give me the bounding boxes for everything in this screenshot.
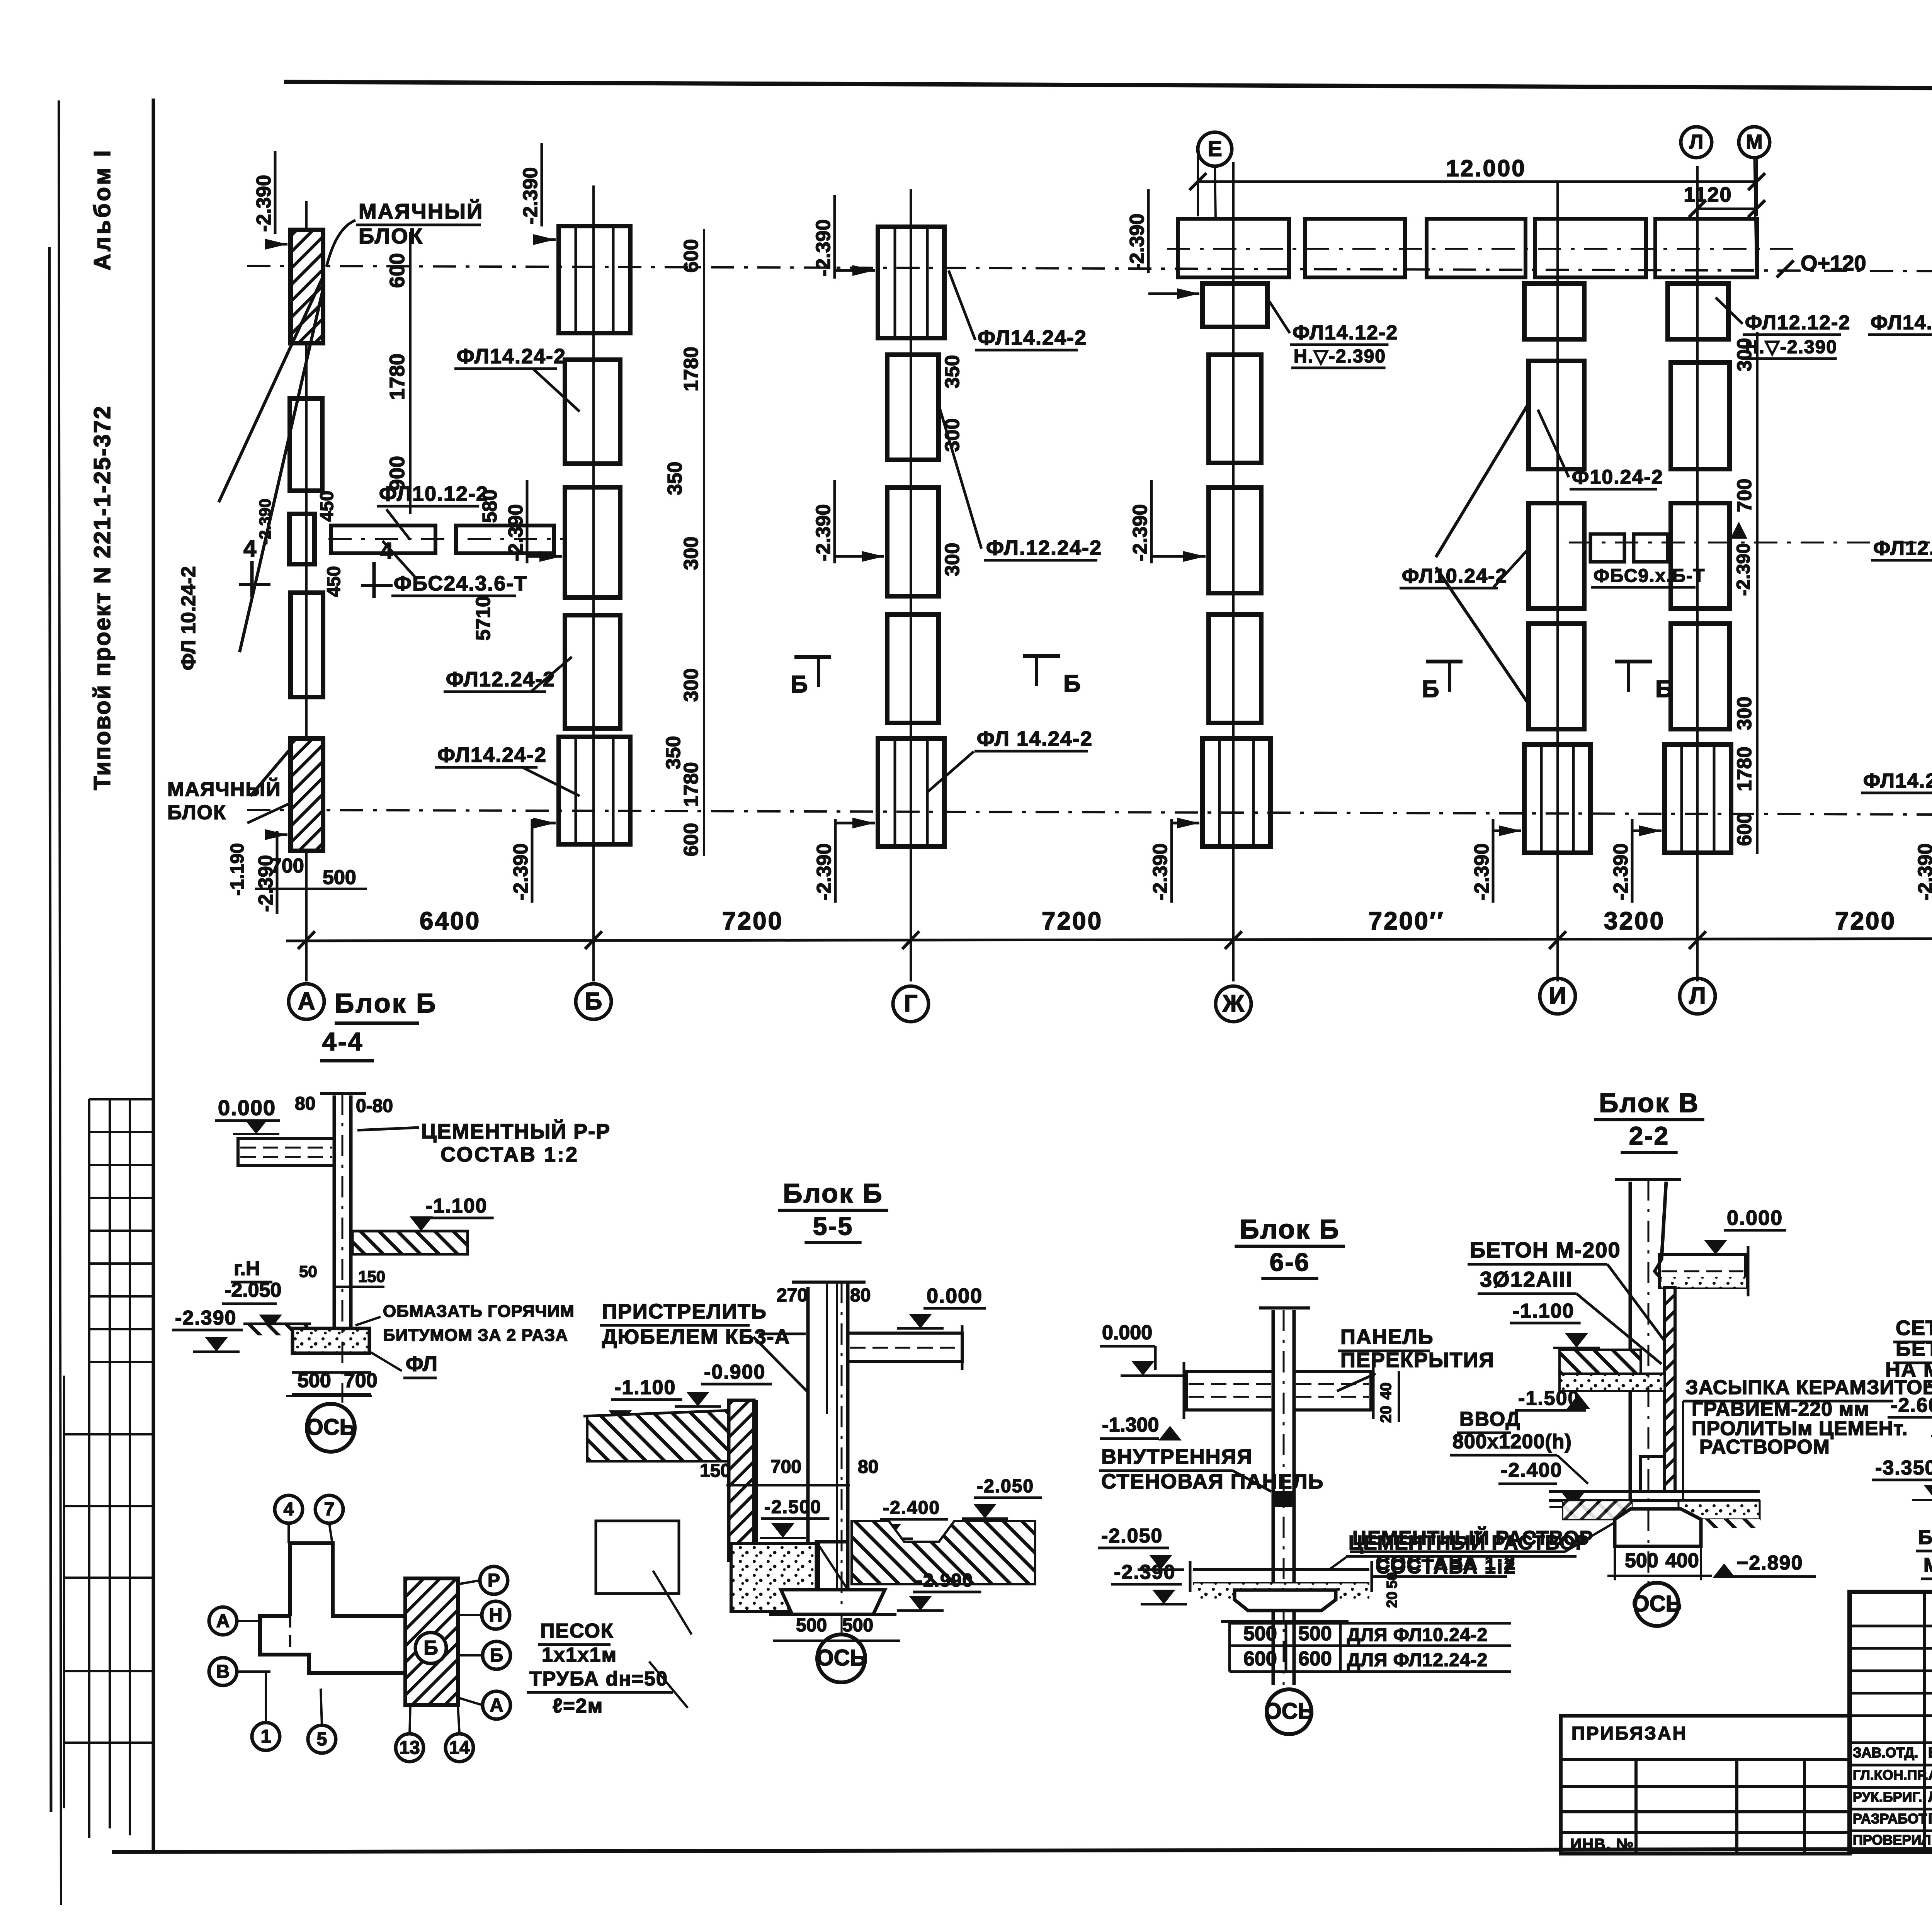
svg-text:-2.050: -2.050 (224, 1279, 281, 1301)
svg-text:Г: Г (904, 990, 917, 1017)
svg-text:600: 600 (1733, 813, 1756, 846)
svg-text:600: 600 (680, 239, 702, 273)
svg-text:ФЛ14.24-2: ФЛ14.24-2 (1871, 311, 1932, 334)
svg-text:-2.390: -2.390 (1471, 844, 1493, 900)
svg-text:Б: Б (423, 1637, 438, 1659)
svg-text:6-6: 6-6 (1270, 1248, 1310, 1276)
svg-text:700: 700 (770, 1457, 801, 1477)
svg-text:А.ИВАНОВСКИЙ: А.ИВАНОВСКИЙ (1928, 1766, 1932, 1783)
svg-text:БЛОК: БЛОК (359, 224, 423, 248)
svg-text:-2.500: -2.500 (764, 1497, 821, 1517)
svg-text:300: 300 (941, 543, 964, 577)
svg-text:ФЛ14.24-2: ФЛ14.24-2 (437, 743, 547, 767)
svg-text:-2.390: -2.390 (175, 1307, 236, 1329)
svg-text:300: 300 (680, 668, 702, 702)
svg-text:Ф10.24-2: Ф10.24-2 (1572, 466, 1663, 488)
svg-text:13: 13 (399, 1738, 420, 1758)
svg-text:ФЛ12.24-2: ФЛ12.24-2 (446, 668, 555, 691)
svg-text:-2.390: -2.390 (253, 175, 275, 232)
svg-text:450: 450 (317, 491, 337, 522)
svg-text:-2.050: -2.050 (977, 1476, 1034, 1497)
svg-text:4-4: 4-4 (322, 1027, 364, 1056)
svg-text:Г. ИВАНОВА: Г. ИВАНОВА (1928, 1811, 1932, 1827)
svg-text:Р: Р (488, 1570, 500, 1591)
svg-text:ФЛ 14.24-2: ФЛ 14.24-2 (977, 727, 1093, 750)
svg-text:1780: 1780 (386, 354, 409, 400)
svg-text:40: 40 (1378, 1383, 1395, 1400)
svg-text:-1.190: -1.190 (227, 843, 248, 896)
svg-text:ФЛ14.24-2: ФЛ14.24-2 (457, 345, 566, 368)
svg-text:600: 600 (1243, 1648, 1277, 1670)
svg-text:НА МЕЛКОМ: НА МЕЛКОМ (1885, 1358, 1932, 1381)
svg-text:ОСЬ: ОСЬ (816, 1645, 866, 1670)
svg-text:600: 600 (680, 823, 702, 857)
svg-text:ТРУБА dн=50: ТРУБА dн=50 (529, 1668, 668, 1690)
svg-text:Л: Л (1689, 131, 1704, 153)
svg-text:80: 80 (295, 1094, 315, 1114)
svg-text:1х1х1м: 1х1х1м (542, 1644, 617, 1666)
svg-text:80: 80 (858, 1457, 878, 1477)
svg-text:7200: 7200 (722, 907, 783, 935)
svg-text:-3.350: -3.350 (1875, 1457, 1932, 1479)
svg-text:СТЕНОВАЯ ПАНЕЛЬ: СТЕНОВАЯ ПАНЕЛЬ (1101, 1470, 1324, 1493)
svg-text:20: 20 (1384, 1592, 1400, 1608)
svg-text:ОСЬ: ОСЬ (1632, 1591, 1682, 1616)
svg-text:500: 500 (842, 1615, 873, 1636)
svg-text:Н: Н (489, 1605, 503, 1626)
svg-text:ОСЬ: ОСЬ (306, 1415, 356, 1440)
svg-text:ФЛ14.12-2: ФЛ14.12-2 (1293, 321, 1398, 344)
svg-text:-2.390: -2.390 (510, 844, 532, 900)
svg-text:РУК.БРИГ.: РУК.БРИГ. (1853, 1789, 1922, 1805)
svg-text:М: М (1746, 131, 1762, 153)
svg-text:7200′′: 7200′′ (1368, 907, 1444, 935)
svg-text:БЕТОН М-200: БЕТОН М-200 (1470, 1238, 1621, 1262)
svg-text:БИТУМОМ ЗА 2 РАЗА: БИТУМОМ ЗА 2 РАЗА (383, 1326, 568, 1345)
svg-text:ВВОД: ВВОД (1459, 1408, 1521, 1430)
svg-text:ДЛЯ ФЛ12.24-2: ДЛЯ ФЛ12.24-2 (1347, 1650, 1488, 1670)
svg-text:-1.100: -1.100 (1513, 1300, 1574, 1322)
svg-text:И: И (1549, 983, 1566, 1009)
svg-text:700: 700 (1733, 479, 1756, 512)
svg-text:5710: 5710 (472, 596, 495, 641)
svg-text:МАЯЧНЫЙ: МАЯЧНЫЙ (359, 199, 483, 223)
svg-text:ФЛ: ФЛ (406, 1352, 437, 1376)
svg-text:ФЛ 10.24-2: ФЛ 10.24-2 (177, 566, 200, 670)
svg-text:150: 150 (358, 1267, 385, 1286)
svg-text:Блок В: Блок В (1599, 1088, 1699, 1118)
svg-text:Н.▽-2.390: Н.▽-2.390 (1294, 346, 1386, 367)
svg-text:350: 350 (664, 462, 686, 495)
svg-text:БЕТОН М-200: БЕТОН М-200 (1896, 1337, 1932, 1361)
svg-text:0.000: 0.000 (1727, 1206, 1783, 1230)
svg-text:7200: 7200 (1042, 907, 1103, 935)
svg-text:СОСТАВА 1:2: СОСТАВА 1:2 (1376, 1552, 1516, 1574)
svg-text:50: 50 (299, 1262, 317, 1281)
svg-text:580: 580 (479, 490, 501, 523)
svg-text:1780: 1780 (1733, 747, 1756, 791)
svg-text:В: В (216, 1662, 230, 1682)
svg-text:-2.390: -2.390 (1610, 844, 1632, 900)
svg-text:ФЛ14.24-2: ФЛ14.24-2 (1863, 770, 1932, 792)
svg-text:0.000: 0.000 (1102, 1321, 1152, 1344)
svg-text:-2.390: -2.390 (256, 498, 274, 544)
svg-text:350: 350 (941, 355, 964, 389)
svg-text:600: 600 (386, 253, 409, 288)
svg-text:Б: Б (490, 1645, 503, 1666)
svg-text:СЕТКА100/100/6/6: СЕТКА100/100/6/6 (1896, 1316, 1932, 1340)
svg-text:Л: Л (1689, 983, 1706, 1009)
svg-text:50: 50 (1384, 1572, 1400, 1588)
svg-text:6400: 6400 (420, 907, 481, 935)
svg-text:-2.990: -2.990 (916, 1570, 973, 1591)
svg-text:14: 14 (449, 1738, 470, 1758)
svg-text:Б: Б (1655, 676, 1673, 702)
svg-text:ПРИСТРЕЛИТЬ: ПРИСТРЕЛИТЬ (602, 1300, 767, 1323)
svg-text:700: 700 (270, 855, 304, 877)
svg-text:Типовой проект N 221-1-25-372: Типовой проект N 221-1-25-372 (89, 405, 115, 790)
svg-text:Блок Б: Блок Б (1240, 1214, 1340, 1244)
svg-text:-2.390: -2.390 (1126, 214, 1148, 270)
svg-text:ИНВ. №: ИНВ. № (1570, 1836, 1634, 1853)
svg-text:-2.600: -2.600 (1891, 1394, 1932, 1417)
svg-text:500: 500 (1298, 1622, 1332, 1645)
svg-text:-2.390: -2.390 (1733, 543, 1754, 596)
svg-text:СОСТАВ 1:2: СОСТАВ 1:2 (440, 1143, 579, 1166)
svg-text:А: А (216, 1611, 230, 1631)
svg-text:Б: Б (791, 671, 808, 698)
svg-text:400: 400 (1665, 1549, 1699, 1572)
svg-text:300: 300 (1733, 697, 1756, 730)
svg-text:4: 4 (284, 1499, 294, 1520)
svg-text:ФБС9.х.Б-Т: ФБС9.х.Б-Т (1594, 566, 1705, 586)
svg-text:М-150 СЕТКИ: М-150 СЕТКИ (1923, 1554, 1932, 1577)
svg-text:0-80: 0-80 (356, 1096, 393, 1116)
svg-text:-2.400: -2.400 (883, 1498, 940, 1518)
svg-text:800х1200(h): 800х1200(h) (1452, 1430, 1572, 1453)
svg-text:5-5: 5-5 (813, 1212, 853, 1240)
svg-text:Альбом I: Альбом I (89, 148, 115, 270)
svg-text:-2.390: -2.390 (1129, 504, 1151, 561)
svg-text:БЕТОН: БЕТОН (1918, 1526, 1932, 1549)
svg-text:г.Н: г.Н (234, 1257, 260, 1280)
svg-text:-2.390: -2.390 (813, 844, 835, 900)
svg-text:ВНУТРЕННЯЯ: ВНУТРЕННЯЯ (1101, 1445, 1253, 1468)
svg-text:ФЛ14.24-2: ФЛ14.24-2 (978, 326, 1087, 349)
svg-text:7200: 7200 (1835, 907, 1896, 935)
svg-text:-2.390: -2.390 (519, 167, 542, 224)
svg-text:ПРИБЯЗАН: ПРИБЯЗАН (1571, 1723, 1687, 1744)
svg-text:ФЛ.12.24-2: ФЛ.12.24-2 (986, 536, 1102, 560)
svg-text:80: 80 (850, 1285, 871, 1306)
svg-text:Е: Е (1207, 136, 1222, 161)
svg-text:ПРОВЕРИЛ: ПРОВЕРИЛ (1853, 1832, 1931, 1848)
svg-text:Б: Б (1422, 676, 1439, 702)
svg-text:О+120: О+120 (1801, 251, 1866, 275)
svg-text:−2.890: −2.890 (1736, 1552, 1803, 1574)
svg-text:РАСТВОРОМ: РАСТВОРОМ (1699, 1436, 1830, 1458)
svg-text:Н.▽-2.390: Н.▽-2.390 (1745, 337, 1837, 357)
svg-text:Л. КЕЛЕРМАН: Л. КЕЛЕРМАН (1928, 1789, 1932, 1805)
svg-text:Б: Б (1063, 670, 1081, 697)
svg-text:1: 1 (261, 1726, 271, 1747)
svg-text:Б: Б (585, 988, 602, 1015)
svg-text:-2.390: -2.390 (812, 219, 835, 276)
svg-text:А: А (298, 988, 315, 1015)
svg-text:ℓ=2м: ℓ=2м (553, 1695, 603, 1717)
svg-text:4: 4 (243, 536, 257, 561)
svg-text:-1.100: -1.100 (426, 1195, 487, 1217)
svg-text:ФЛ12.24-2: ФЛ12.24-2 (1873, 537, 1932, 560)
svg-text:0.000: 0.000 (927, 1284, 983, 1308)
svg-text:-2.390: -2.390 (812, 504, 835, 561)
svg-text:ОБМАЗАТЬ ГОРЯЧИМ: ОБМАЗАТЬ ГОРЯЧИМ (383, 1302, 575, 1321)
svg-text:20: 20 (1378, 1406, 1395, 1423)
svg-text:500: 500 (323, 866, 356, 889)
svg-text:МАЯЧНЫЙ: МАЯЧНЫЙ (167, 778, 281, 801)
svg-text:БЛОК: БЛОК (167, 801, 226, 824)
svg-text:ФЛ12.12-2: ФЛ12.12-2 (1745, 311, 1850, 334)
svg-text:-1.300: -1.300 (1102, 1414, 1159, 1436)
svg-text:ПАНЕЛЬ: ПАНЕЛЬ (1340, 1325, 1434, 1349)
svg-text:2-2: 2-2 (1629, 1121, 1669, 1150)
svg-text:1120: 1120 (1684, 183, 1732, 206)
svg-text:А: А (490, 1695, 503, 1716)
svg-text:500: 500 (1243, 1622, 1277, 1645)
svg-text:600: 600 (1298, 1648, 1332, 1670)
svg-text:ЗАВ.ОТД.: ЗАВ.ОТД. (1853, 1745, 1918, 1760)
svg-text:Б.ГОРОДЕЦКИЙ: Б.ГОРОДЕЦКИЙ (1928, 1743, 1932, 1761)
svg-text:ЦЕМЕНТНЫЙ Р-Р: ЦЕМЕНТНЫЙ Р-Р (421, 1119, 611, 1143)
svg-text:1780: 1780 (680, 347, 702, 391)
svg-text:ГЛ.КОН.ПР.: ГЛ.КОН.ПР. (1853, 1767, 1928, 1783)
svg-text:ДЛЯ ФЛ10.24-2: ДЛЯ ФЛ10.24-2 (1347, 1625, 1488, 1645)
svg-text:РАЗРАБОТ: РАЗРАБОТ (1853, 1811, 1927, 1827)
svg-text:-2.050: -2.050 (1101, 1525, 1163, 1547)
svg-text:Блок Б: Блок Б (783, 1178, 883, 1208)
svg-text:ФЛ10.12-2: ФЛ10.12-2 (379, 482, 488, 505)
svg-text:5: 5 (317, 1729, 327, 1750)
svg-text:3Ø12АIII: 3Ø12АIII (1480, 1267, 1573, 1291)
svg-text:3200: 3200 (1604, 907, 1665, 935)
svg-text:-2.390: -2.390 (1114, 1561, 1175, 1583)
svg-text:300: 300 (680, 537, 702, 570)
svg-text:-1.100: -1.100 (614, 1376, 676, 1399)
svg-text:ФЛ10.24-2: ФЛ10.24-2 (1402, 565, 1507, 587)
svg-text:7: 7 (324, 1499, 335, 1520)
svg-text:-2.390: -2.390 (1914, 844, 1932, 900)
svg-text:500: 500 (1625, 1549, 1658, 1572)
svg-text:12.000: 12.000 (1446, 155, 1526, 181)
svg-text:-2.400: -2.400 (1501, 1459, 1562, 1481)
svg-text:-2.390: -2.390 (1149, 844, 1172, 900)
svg-text:-0.900: -0.900 (704, 1361, 765, 1383)
svg-text:0.000: 0.000 (218, 1095, 276, 1120)
svg-text:150: 150 (700, 1461, 731, 1481)
svg-text:ЦЕМЕНТНЫЙ РАСТВОР: ЦЕМЕНТНЫЙ РАСТВОР (1352, 1527, 1593, 1549)
svg-text:270: 270 (777, 1285, 808, 1306)
svg-text:450: 450 (324, 566, 344, 597)
svg-text:ОСЬ: ОСЬ (1264, 1699, 1314, 1724)
svg-text:ПЕСОК: ПЕСОК (540, 1620, 614, 1642)
svg-text:Блок Б: Блок Б (335, 988, 437, 1018)
svg-text:1780: 1780 (680, 762, 702, 807)
svg-text:-2.390: -2.390 (505, 504, 527, 561)
svg-text:Ж: Ж (1222, 990, 1245, 1017)
svg-text:500: 500 (796, 1615, 827, 1636)
